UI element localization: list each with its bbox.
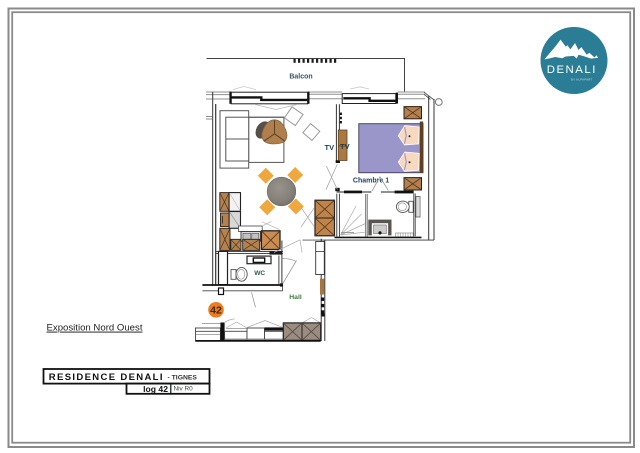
svg-text:42: 42 bbox=[210, 305, 222, 317]
svg-text:DENALI: DENALI bbox=[547, 64, 597, 76]
svg-text:RESIDENCE DENALI: RESIDENCE DENALI bbox=[49, 372, 164, 383]
svg-text:Balcon: Balcon bbox=[289, 74, 312, 81]
svg-text:BY ALPAPART: BY ALPAPART bbox=[571, 78, 593, 82]
svg-text:Exposition Nord Ouest: Exposition Nord Ouest bbox=[47, 323, 143, 334]
svg-text:TV: TV bbox=[325, 143, 335, 152]
svg-text:WC: WC bbox=[254, 270, 265, 277]
svg-text:Hall: Hall bbox=[289, 294, 302, 301]
svg-text:- TIGNES: - TIGNES bbox=[168, 375, 198, 382]
svg-text:TV: TV bbox=[340, 142, 350, 151]
svg-text:log 42: log 42 bbox=[143, 384, 168, 394]
svg-text:Niv R0: Niv R0 bbox=[174, 385, 194, 392]
